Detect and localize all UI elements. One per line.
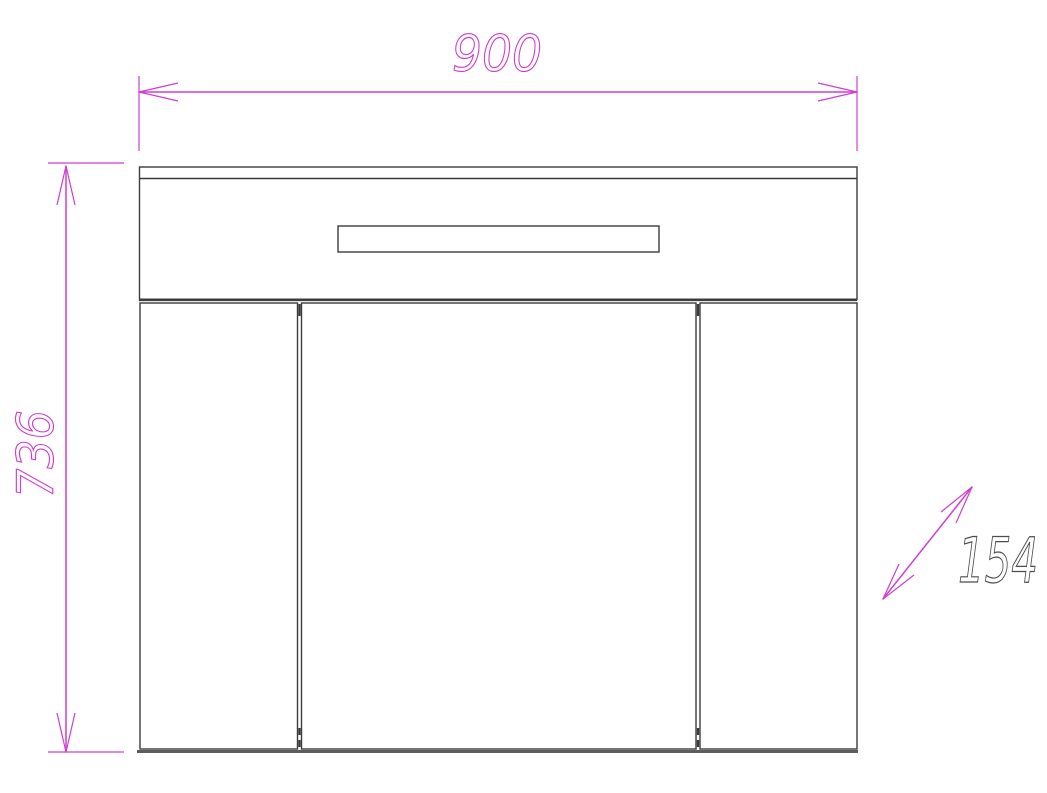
width-dimension-label: 900 — [452, 25, 542, 83]
cabinet-top-panel — [140, 167, 858, 300]
technical-drawing-canvas: 900 736 — [0, 0, 1047, 793]
center-mirror-panel — [302, 303, 697, 749]
mirror-glint-canopy-left — [198, 188, 281, 271]
height-dimension: 736 — [7, 163, 124, 752]
depth-dimension: 154 — [883, 487, 1038, 599]
mirror-glint-right-door-upper — [735, 338, 807, 410]
mirror-glint-right-door-lower — [748, 630, 827, 709]
depth-dimension-label: 154 — [958, 524, 1038, 597]
mirror-cabinet-drawing: 900 736 — [0, 0, 1047, 793]
mirror-glint-left-door-upper — [165, 341, 238, 414]
cabinet-outline — [137, 167, 858, 752]
mirror-glint-canopy-right — [722, 213, 793, 284]
mirror-glint-left-door-lower — [185, 638, 260, 713]
width-dimension: 900 — [139, 25, 857, 151]
mirror-glints — [165, 188, 827, 713]
light-fixture — [338, 226, 659, 252]
height-dimension-label: 736 — [7, 410, 65, 498]
left-mirror-door — [140, 303, 298, 749]
mirror-glint-center-upper — [373, 345, 450, 422]
mirror-glint-center-lower — [545, 623, 619, 697]
right-mirror-door — [700, 303, 857, 749]
